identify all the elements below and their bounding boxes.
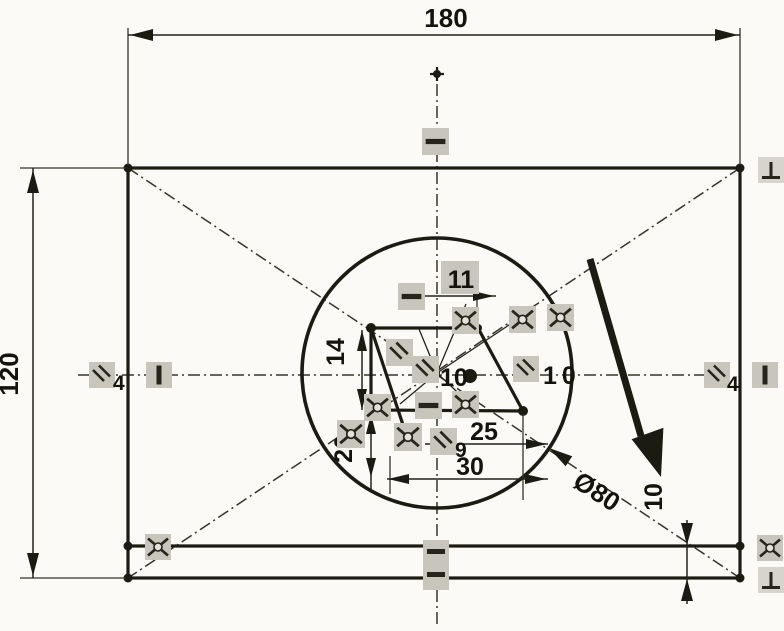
dim-value-14[interactable]: 14 [322, 338, 350, 366]
sketch-drawing: 180 120 10 Ø80 11 14 [0, 0, 784, 631]
dim-value-diameter[interactable]: Ø80 [568, 465, 626, 517]
coincident-constraint-icon[interactable] [364, 394, 391, 421]
dim-value-25[interactable]: 25 [470, 418, 498, 446]
coincident-constraint-icon[interactable] [757, 535, 783, 561]
parallel-constraint-icon[interactable] [412, 356, 439, 383]
dim-value-11[interactable]: 11 [448, 266, 475, 294]
vertical-constraint-icon[interactable] [752, 362, 778, 388]
perpendicular-constraint-icon[interactable] [758, 157, 784, 183]
coincident-constraint-icon[interactable] [452, 307, 479, 334]
coincident-constraint-icon[interactable] [509, 306, 536, 333]
coincident-constraint-icon[interactable] [145, 534, 171, 560]
coincident-constraint-icon[interactable] [394, 423, 422, 451]
perpendicular-constraint-icon[interactable] [758, 567, 784, 593]
coincident-constraint-icon[interactable] [337, 420, 365, 448]
dimension-10-strip[interactable]: 10 [640, 483, 693, 604]
dimension-25[interactable]: 25 [425, 414, 548, 500]
coincident-constraint-icon[interactable] [452, 391, 479, 418]
parallel-badge-left: 4 [113, 372, 125, 395]
parallel-constraint-icon[interactable] [89, 362, 115, 388]
horizontal-constraint-icon[interactable] [398, 283, 425, 310]
stacked-horizontal-constraint-icons[interactable] [423, 540, 449, 590]
dimension-14[interactable]: 14 [322, 330, 367, 410]
parallel-badge-right: 4 [727, 373, 739, 396]
parallel-badge-center: 10 [440, 364, 468, 392]
annotation-arrow[interactable] [590, 259, 663, 477]
parallel-badge-mid: 10 [543, 362, 581, 390]
parallel-constraint-icon[interactable] [513, 356, 539, 382]
cad-sketch-canvas[interactable]: 180 120 10 Ø80 11 14 [0, 0, 784, 631]
dimension-30[interactable]: 30 [387, 453, 548, 494]
inner-bottom-line[interactable] [371, 410, 523, 411]
coincident-constraint-icon[interactable] [547, 304, 574, 331]
dimension-diameter-80[interactable]: Ø80 [549, 448, 626, 517]
horizontal-constraint-icon[interactable] [415, 392, 442, 419]
dim-value-120[interactable]: 120 [0, 352, 24, 395]
top-sketch-point[interactable] [430, 67, 444, 81]
parallel-constraint-icon[interactable] [430, 428, 457, 455]
dim-value-10-strip[interactable]: 10 [640, 483, 668, 511]
parallel-badge-lower: 9 [455, 439, 467, 462]
parallel-constraint-icon[interactable] [386, 339, 413, 366]
horizontal-constraint-icon[interactable] [422, 128, 449, 155]
dim-value-180[interactable]: 180 [424, 3, 467, 33]
vertical-constraint-icon[interactable] [146, 362, 172, 388]
